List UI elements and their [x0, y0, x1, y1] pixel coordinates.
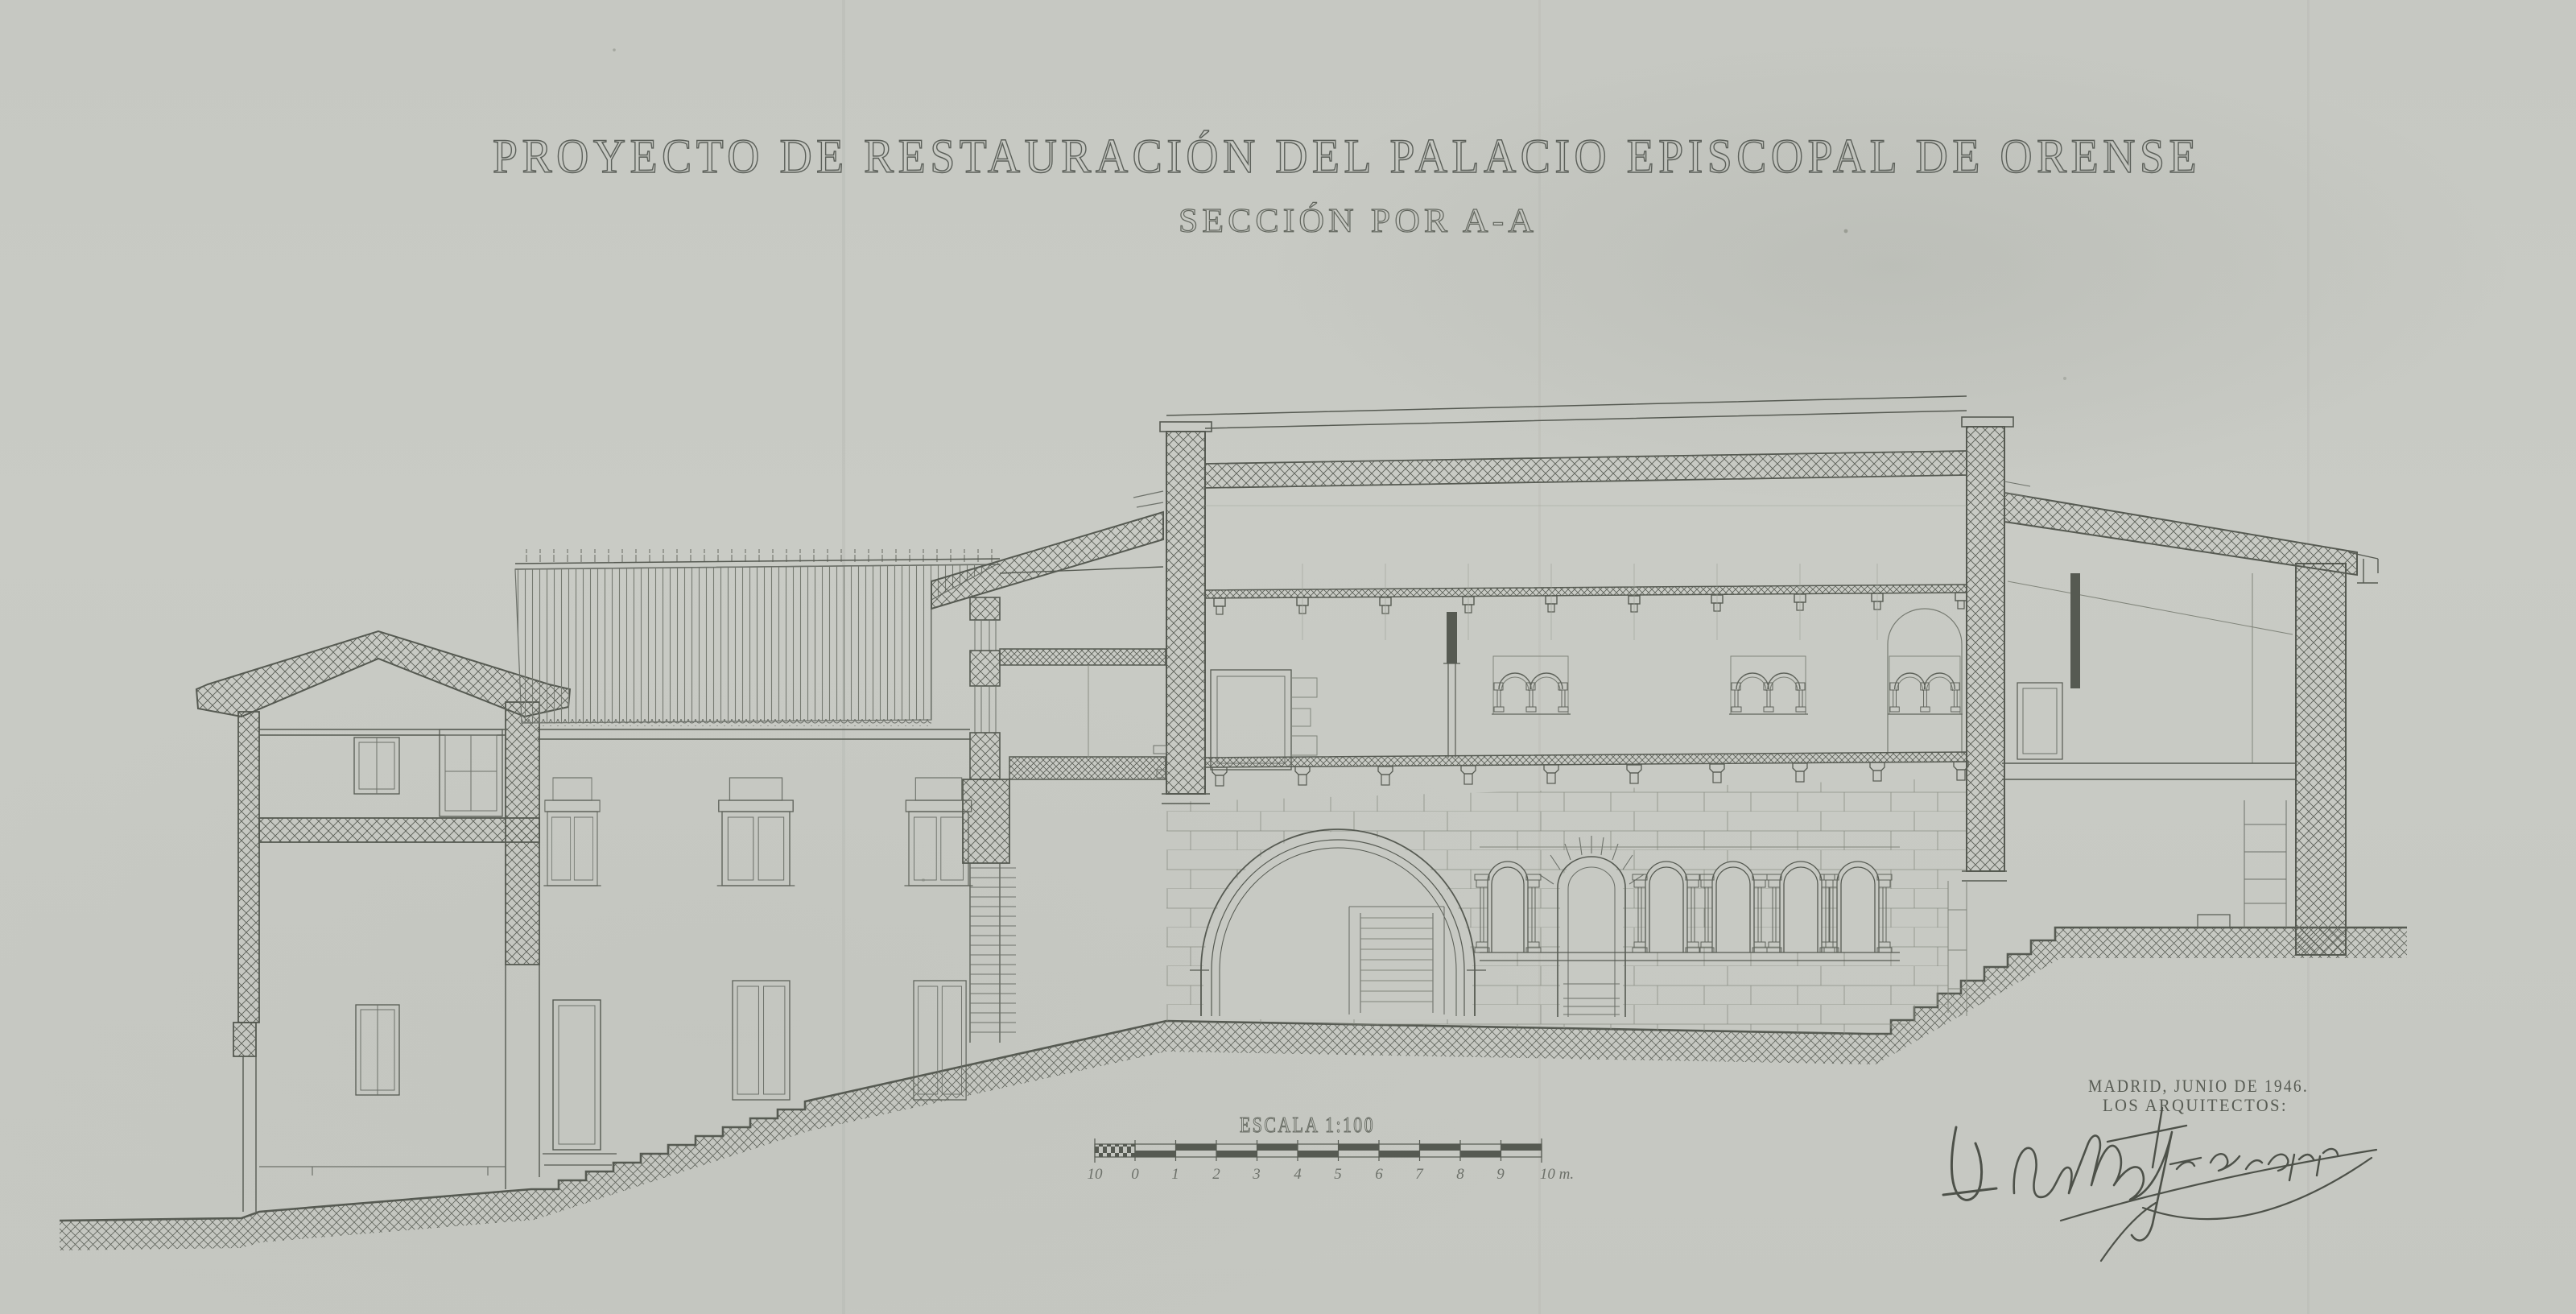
right-wing-wall — [2296, 564, 2346, 955]
scale-bar-ticks: 10 0 1 2 3 4 5 6 7 8 9 10 m. — [1088, 1166, 1575, 1183]
facade-lower-window-1 — [733, 981, 790, 1100]
left-wing-upper-window — [354, 738, 399, 794]
stair-flights — [970, 868, 1016, 1032]
right-wing-interior — [2002, 573, 2296, 928]
facade-upper-window-1 — [543, 778, 601, 886]
stair-tower-section — [931, 491, 1166, 1043]
left-wing-floor-slab — [259, 818, 539, 842]
credit-place-date: MADRID, JUNIO DE 1946. — [2088, 1076, 2309, 1096]
svg-text:5: 5 — [1334, 1166, 1342, 1183]
signature — [1943, 1108, 2376, 1261]
section-drawing: PROYECTO DE RESTAURACIÓN DEL PALACIO EPI… — [0, 0, 2576, 1314]
left-wing-wall-left — [238, 712, 259, 1023]
right-wing-section — [2002, 481, 2378, 955]
main-block-section — [1154, 396, 2013, 1034]
scale-label: ESCALA 1:100 — [1240, 1113, 1375, 1137]
svg-text:3: 3 — [1252, 1166, 1261, 1183]
svg-text:4: 4 — [1294, 1166, 1302, 1183]
facade-upper-window-2 — [717, 778, 795, 886]
scale-bar: ESCALA 1:100 10 0 1 2 3 4 5 6 7 8 9 10 m… — [1088, 1113, 1575, 1183]
facade-elevation — [515, 549, 1000, 1165]
drawing-sheet: PROYECTO DE RESTAURACIÓN DEL PALACIO EPI… — [0, 0, 2576, 1314]
credits-block: MADRID, JUNIO DE 1946. LOS ARQUITECTOS: — [1943, 1076, 2376, 1261]
hall-ceiling — [1205, 585, 1967, 598]
twin-window-1 — [1492, 656, 1571, 714]
svg-text:10: 10 — [1088, 1166, 1104, 1183]
left-wing-section — [196, 631, 570, 1212]
twin-window-3 — [1888, 609, 1963, 754]
drawing-subtitle: SECCIÓN POR A-A — [1179, 202, 1538, 240]
pier-left — [1166, 432, 1205, 794]
svg-text:0: 0 — [1131, 1166, 1139, 1183]
svg-text:6: 6 — [1375, 1166, 1383, 1183]
drawing-title: PROYECTO DE RESTAURACIÓN DEL PALACIO EPI… — [493, 130, 2201, 183]
svg-text:8: 8 — [1456, 1166, 1464, 1183]
title-block: PROYECTO DE RESTAURACIÓN DEL PALACIO EPI… — [493, 130, 2201, 240]
svg-text:2: 2 — [1212, 1166, 1220, 1183]
svg-text:1: 1 — [1171, 1166, 1179, 1183]
hall-post — [1443, 612, 1460, 758]
roof-slab — [1205, 451, 1967, 488]
pier-right — [1967, 427, 2004, 871]
left-wing-lower-window — [356, 1005, 399, 1095]
right-wing-roof — [2004, 493, 2357, 575]
svg-text:7: 7 — [1415, 1166, 1424, 1183]
facade-door — [543, 1000, 617, 1165]
hall-left-door — [1211, 670, 1317, 770]
svg-text:10 m.: 10 m. — [1540, 1166, 1574, 1183]
hall-floor-band — [1205, 752, 1967, 767]
facade-tiled-roof — [515, 564, 997, 723]
twin-window-2 — [1729, 656, 1808, 714]
left-wing-section-window — [440, 729, 502, 816]
credit-byline: LOS ARQUITECTOS: — [2103, 1095, 2288, 1115]
svg-text:9: 9 — [1496, 1166, 1505, 1183]
